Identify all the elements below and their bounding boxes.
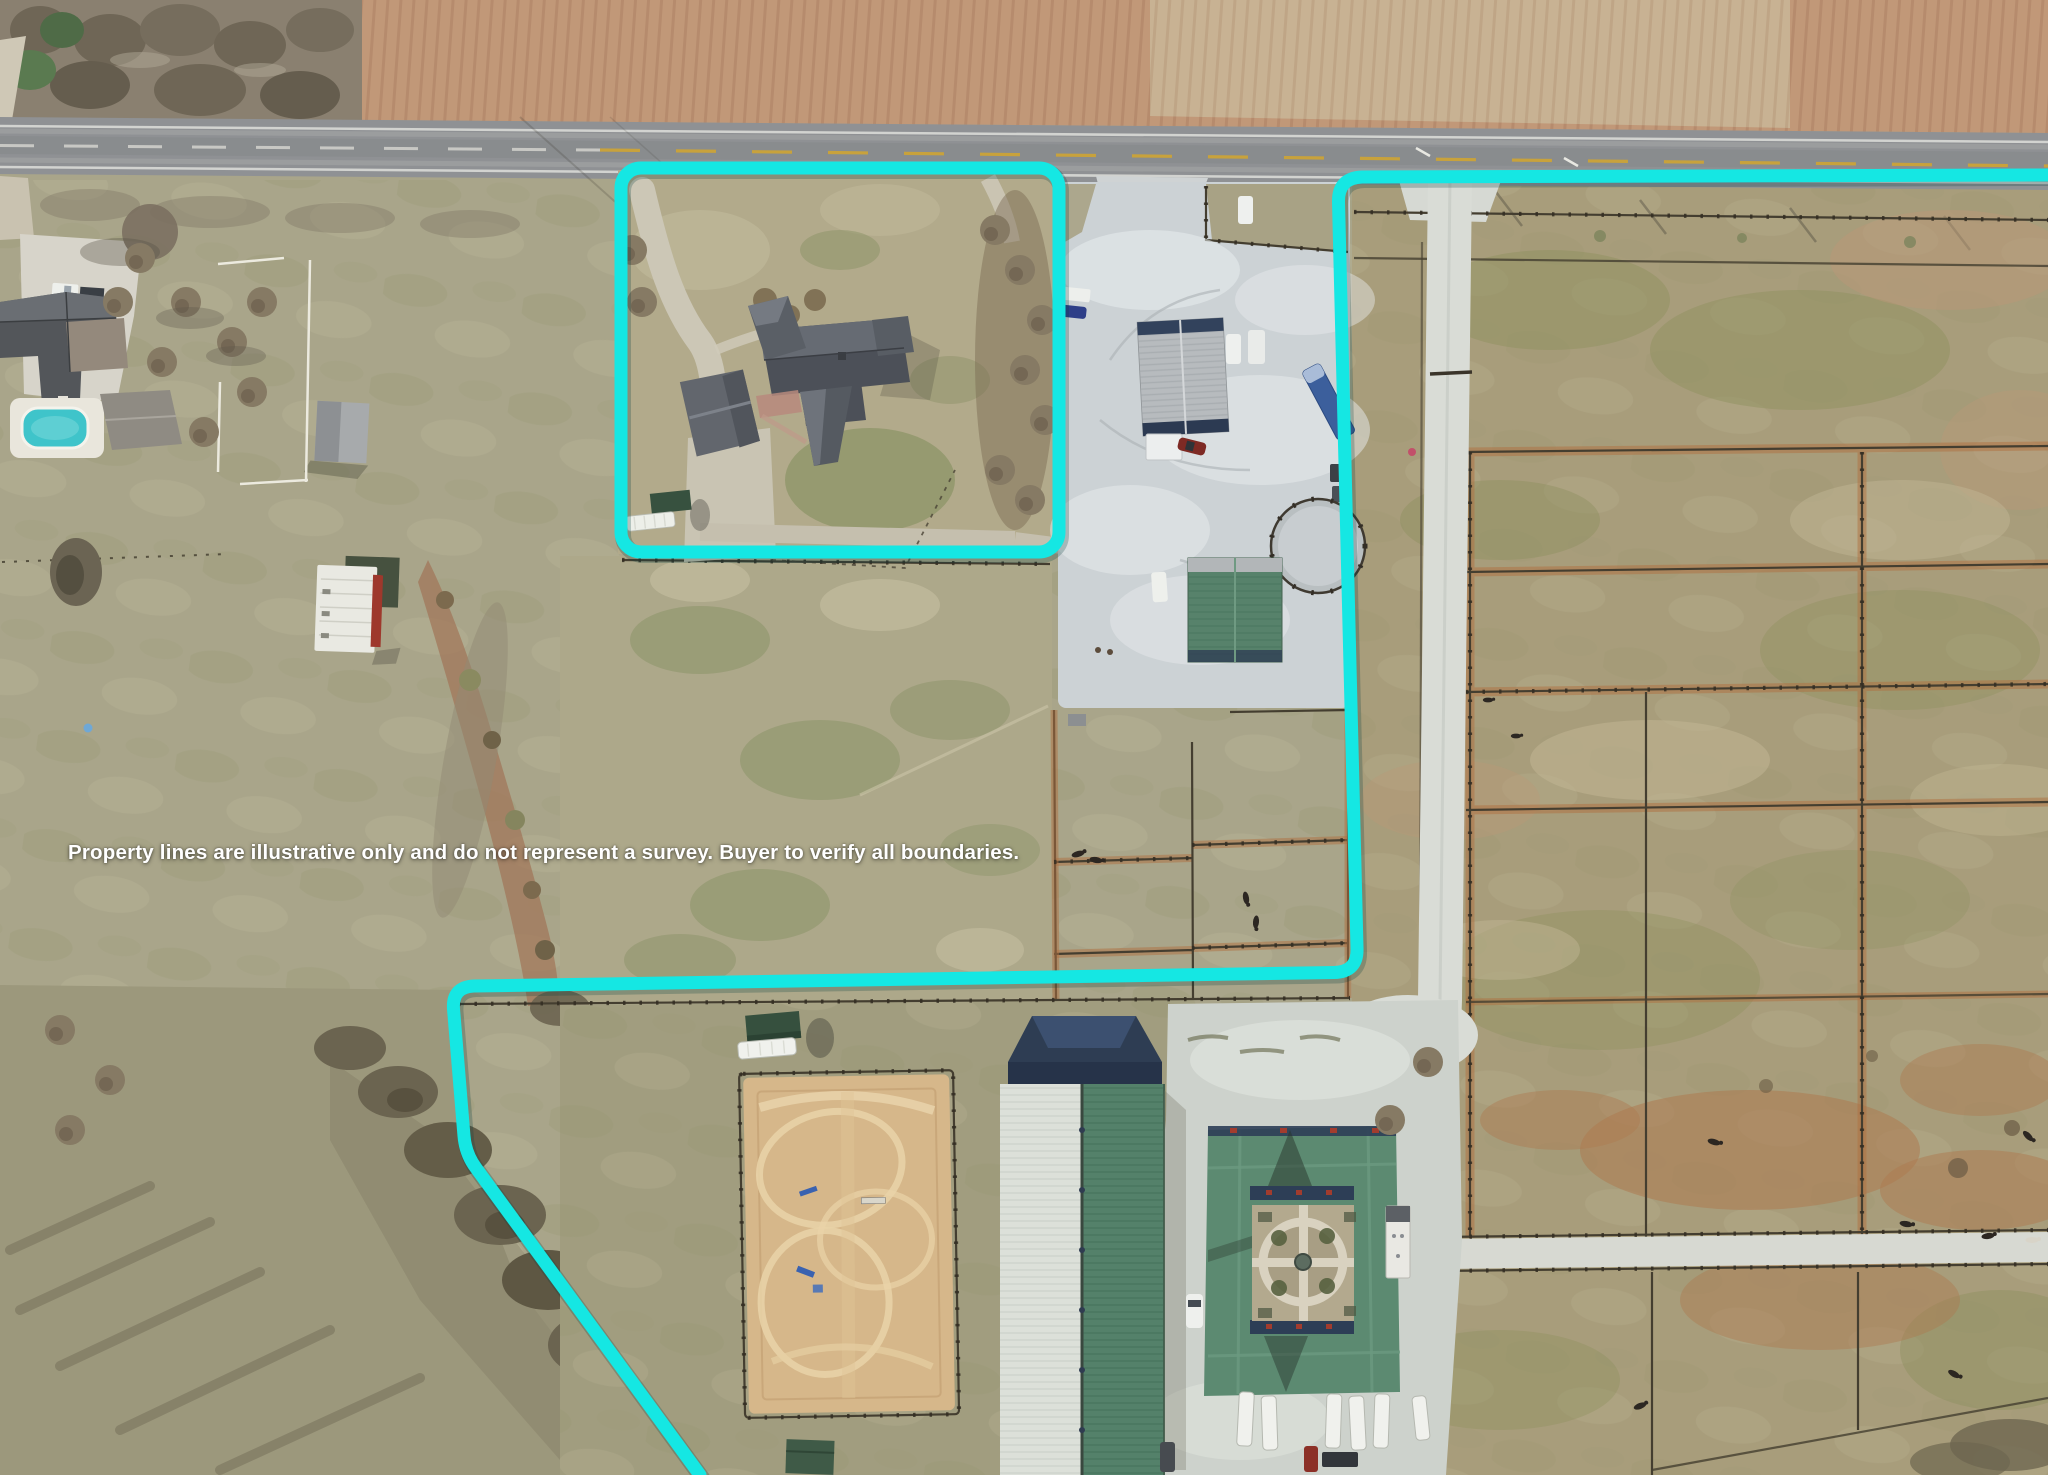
disclaimer-text: Property lines are illustrative only and… xyxy=(68,841,1019,865)
green-shed-building xyxy=(1188,558,1282,662)
farmstead-south xyxy=(458,998,1462,1475)
woods-north xyxy=(0,0,366,122)
white-suv xyxy=(1226,334,1241,364)
aerial-property-photo: Property lines are illustrative only and… xyxy=(0,0,2048,1475)
tilled-field-north xyxy=(362,0,2048,133)
green-shed-south xyxy=(785,1439,834,1475)
gate xyxy=(1430,372,1472,374)
gravel-yard xyxy=(1050,182,1375,708)
dark-trailer xyxy=(1322,1452,1358,1467)
red-truck xyxy=(1304,1446,1318,1472)
loafing-shed xyxy=(1068,714,1086,726)
arena-jump xyxy=(861,1197,885,1203)
stable-courtyard-complex xyxy=(1204,1126,1400,1396)
riding-arena xyxy=(739,1070,959,1418)
white-van xyxy=(1151,572,1168,603)
fountain xyxy=(1295,1254,1311,1270)
white-suv xyxy=(1238,196,1253,224)
courtyard-garden xyxy=(1252,1205,1356,1321)
tower-building xyxy=(1386,1206,1410,1278)
dark-pickup xyxy=(1160,1442,1175,1472)
aerial-photo-canvas xyxy=(0,0,2048,1475)
main-barn xyxy=(1000,1016,1186,1475)
blue-barrel xyxy=(84,724,93,733)
house-parcel xyxy=(617,170,1062,568)
south-lane xyxy=(700,532,1015,540)
equipment-building xyxy=(1137,318,1229,436)
arena-jump xyxy=(813,1284,823,1292)
white-suv xyxy=(1248,330,1265,364)
neighbor-garage xyxy=(100,390,182,450)
white-car xyxy=(1186,1294,1203,1328)
canopy xyxy=(1146,434,1182,460)
